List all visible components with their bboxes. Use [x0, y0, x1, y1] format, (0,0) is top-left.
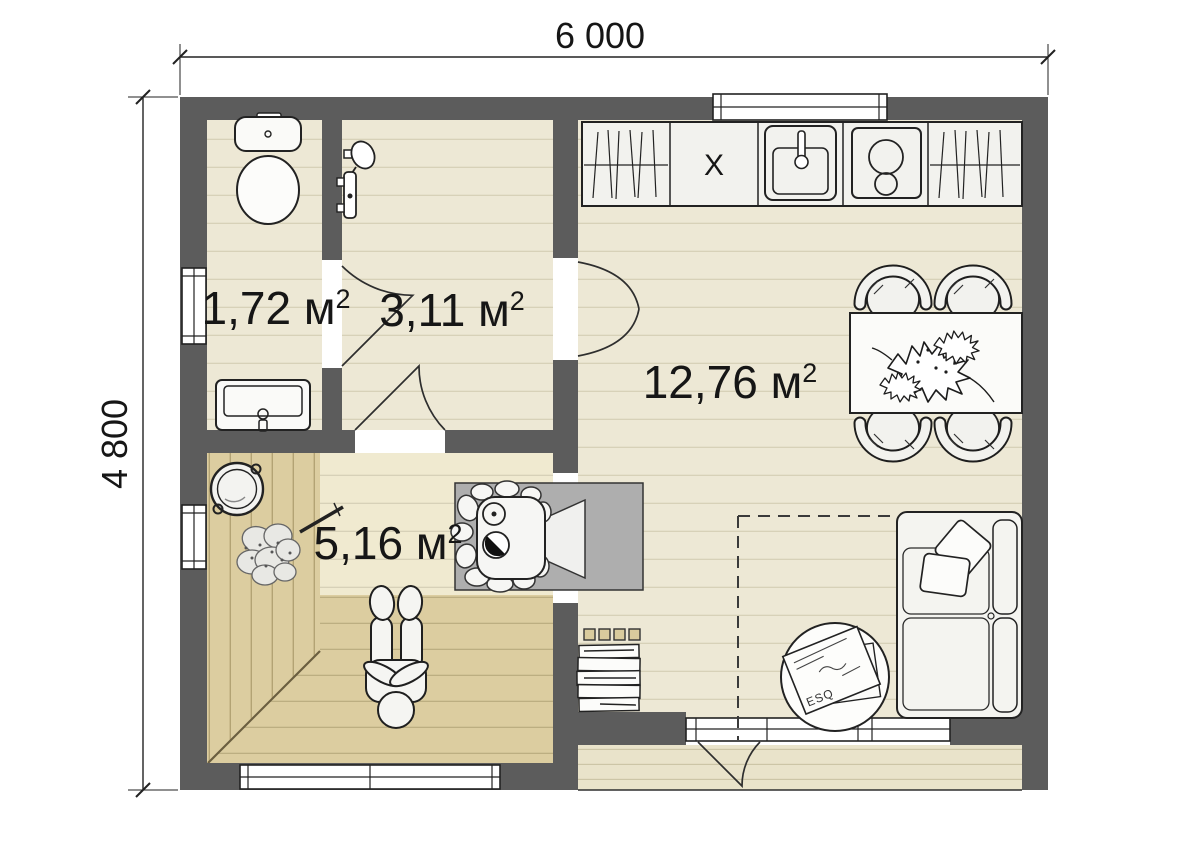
- room-label-sauna: 5,16 м2: [314, 517, 463, 569]
- wall: [445, 430, 553, 453]
- dimension-width-label: 6 000: [555, 15, 645, 56]
- wall: [553, 360, 578, 473]
- wall: [180, 97, 1048, 120]
- dimension-height-label: 4 800: [94, 399, 135, 489]
- room-label-wc: 1,72 м2: [202, 282, 351, 334]
- wash-basin: [216, 380, 310, 431]
- rug: ESQ: [781, 623, 889, 731]
- sofa: [897, 512, 1022, 718]
- floor-plan-drawing: X: [0, 0, 1200, 848]
- window-left-sauna: [182, 505, 206, 569]
- bucket: [211, 463, 263, 515]
- kitchen-counter: X: [582, 122, 1022, 206]
- cabinet-x-label: X: [704, 149, 724, 182]
- pillow: [920, 553, 971, 597]
- wall: [180, 120, 207, 790]
- toilet: [235, 113, 301, 224]
- dining-set: [850, 271, 1022, 456]
- sauna-stove-assembly: [451, 481, 643, 592]
- window-bottom-sauna: [240, 765, 500, 789]
- room-label-shower: 3,11 м2: [379, 284, 525, 336]
- wall: [207, 430, 355, 453]
- wall: [322, 120, 342, 260]
- wall: [1022, 120, 1048, 790]
- wall: [322, 368, 342, 430]
- window-top-kitchen: [713, 94, 887, 120]
- wall: [553, 120, 578, 258]
- wall: [553, 603, 578, 763]
- floor-plan-page: X: [0, 0, 1200, 848]
- wall: [578, 712, 686, 745]
- room-label-living: 12,76 м2: [643, 356, 818, 408]
